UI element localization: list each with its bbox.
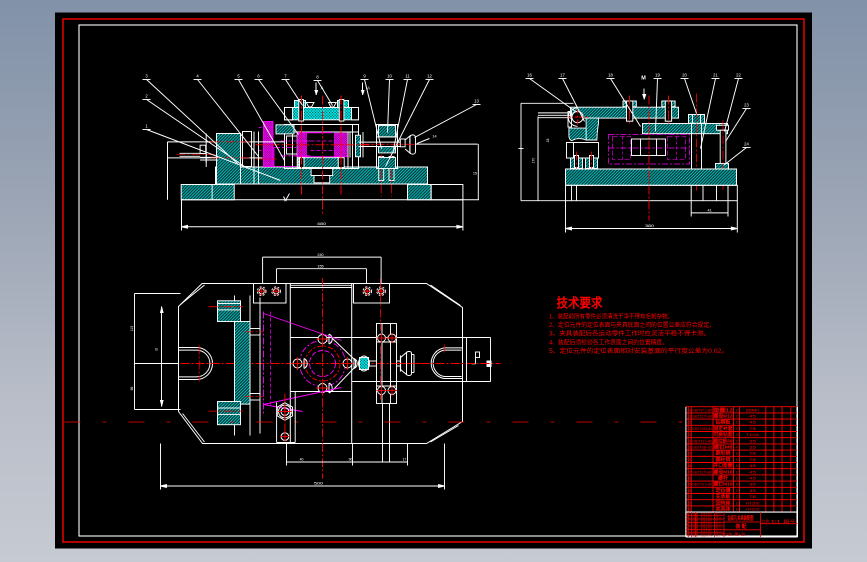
svg-text:更改文件号: 更改文件号 bbox=[701, 515, 713, 519]
svg-text:螺母M12: 螺母M12 bbox=[714, 413, 733, 420]
svg-text:GB/T68-85: GB/T68-85 bbox=[692, 445, 713, 450]
svg-text:1: 1 bbox=[735, 464, 737, 468]
svg-text:1: 1 bbox=[735, 470, 737, 474]
svg-text:定位键: 定位键 bbox=[716, 487, 731, 494]
svg-text:17: 17 bbox=[560, 73, 565, 78]
svg-text:螺杆: 螺杆 bbox=[718, 475, 728, 482]
svg-text:45: 45 bbox=[749, 463, 757, 468]
svg-text:86: 86 bbox=[130, 387, 134, 391]
svg-text:技术要求: 技术要求 bbox=[557, 296, 604, 311]
svg-text:45: 45 bbox=[749, 414, 757, 419]
svg-text:钻底孔夹具装配图: 钻底孔夹具装配图 bbox=[728, 514, 754, 522]
svg-text:签字: 签字 bbox=[716, 526, 722, 530]
svg-text:4、装配后须检验各工作表面之间的位置精度。: 4、装配后须检验各工作表面之间的位置精度。 bbox=[549, 338, 668, 346]
svg-text:480: 480 bbox=[317, 221, 327, 226]
svg-text:2、定位元件的定位表面与夹具底面之间的位置公差应符合规定。: 2、定位元件的定位表面与夹具底面之间的位置公差应符合规定。 bbox=[549, 321, 715, 329]
svg-text:M: M bbox=[641, 76, 646, 82]
svg-text:处数: 处数 bbox=[692, 515, 698, 519]
svg-text:处数: 处数 bbox=[692, 522, 698, 526]
svg-text:1:1: 1:1 bbox=[771, 519, 780, 523]
svg-text:签字: 签字 bbox=[716, 512, 722, 516]
svg-text:5、定位元件的定位表面相对安装基面的平行度公差为0.02。: 5、定位元件的定位表面相对安装基面的平行度公差为0.02。 bbox=[549, 347, 728, 355]
svg-text:标: 标 bbox=[687, 519, 691, 523]
svg-text:1、装配前所有零件必须清洗干净不得有毛刺杂物。: 1、装配前所有零件必须清洗干净不得有毛刺杂物。 bbox=[549, 313, 673, 321]
svg-text:更改文件号: 更改文件号 bbox=[701, 533, 713, 537]
svg-text:17: 17 bbox=[688, 408, 691, 412]
svg-text:1: 1 bbox=[735, 458, 737, 462]
svg-text:16: 16 bbox=[688, 415, 691, 419]
svg-text:垫圈12: 垫圈12 bbox=[714, 406, 733, 413]
svg-text:标: 标 bbox=[687, 529, 691, 533]
svg-text:35: 35 bbox=[749, 445, 757, 450]
svg-text:2: 2 bbox=[735, 489, 737, 493]
svg-text:更改文件号: 更改文件号 bbox=[701, 529, 713, 533]
svg-text:5: 5 bbox=[688, 483, 691, 487]
svg-text:回转座: 回转座 bbox=[716, 499, 731, 506]
svg-text:T8: T8 bbox=[749, 426, 757, 431]
svg-text:开口垫圈: 开口垫圈 bbox=[714, 462, 733, 469]
svg-text:签字: 签字 bbox=[716, 515, 722, 519]
svg-text:2: 2 bbox=[735, 439, 737, 443]
svg-text:HT200: HT200 bbox=[746, 500, 761, 505]
svg-text:处数: 处数 bbox=[692, 529, 698, 533]
svg-text:2: 2 bbox=[735, 495, 737, 499]
svg-text:标: 标 bbox=[687, 533, 691, 537]
svg-text:标: 标 bbox=[687, 526, 691, 530]
svg-text:2: 2 bbox=[735, 427, 737, 431]
svg-text:B: B bbox=[155, 348, 158, 352]
svg-text:处数: 处数 bbox=[692, 533, 698, 537]
svg-text:标: 标 bbox=[687, 522, 691, 526]
svg-text:GB/T6170-86: GB/T6170-86 bbox=[692, 469, 713, 474]
svg-text:15: 15 bbox=[688, 421, 691, 425]
svg-text:45: 45 bbox=[749, 476, 757, 481]
svg-text:1: 1 bbox=[688, 508, 691, 512]
svg-text:18: 18 bbox=[608, 73, 613, 78]
svg-text:240: 240 bbox=[317, 253, 323, 257]
svg-text:10: 10 bbox=[688, 452, 691, 456]
svg-text:螺钉M8: 螺钉M8 bbox=[714, 444, 733, 451]
svg-text:更改文件号: 更改文件号 bbox=[701, 512, 713, 516]
svg-text:11: 11 bbox=[688, 446, 691, 450]
svg-text:12: 12 bbox=[427, 74, 432, 79]
svg-text:2: 2 bbox=[688, 501, 691, 505]
svg-text:2: 2 bbox=[735, 408, 737, 412]
svg-text:比例: 比例 bbox=[762, 518, 769, 523]
svg-text:圆柱销A8: 圆柱销A8 bbox=[714, 437, 733, 444]
svg-text:4: 4 bbox=[735, 483, 737, 487]
svg-text:4: 4 bbox=[688, 489, 691, 493]
svg-text:图号: 图号 bbox=[784, 518, 796, 523]
svg-text:17: 17 bbox=[403, 457, 407, 461]
svg-text:14: 14 bbox=[432, 135, 436, 139]
svg-text:T8: T8 bbox=[749, 494, 757, 499]
svg-text:螺母M16: 螺母M16 bbox=[714, 468, 733, 475]
svg-text:1: 1 bbox=[735, 477, 737, 481]
svg-text:35: 35 bbox=[749, 482, 757, 487]
svg-text:2: 2 bbox=[735, 415, 737, 419]
svg-text:螺钉M10: 螺钉M10 bbox=[714, 481, 733, 488]
svg-text:1: 1 bbox=[735, 508, 737, 512]
svg-text:处数: 处数 bbox=[692, 512, 698, 516]
svg-text:6: 6 bbox=[688, 477, 691, 481]
svg-text:装 配: 装 配 bbox=[736, 522, 748, 530]
svg-text:115: 115 bbox=[130, 326, 134, 332]
svg-text:标: 标 bbox=[687, 512, 691, 516]
svg-text:T8: T8 bbox=[749, 457, 757, 462]
svg-text:24: 24 bbox=[744, 142, 749, 147]
svg-text:155: 155 bbox=[317, 265, 323, 269]
svg-text:标: 标 bbox=[687, 515, 691, 519]
svg-text:13: 13 bbox=[688, 433, 691, 437]
svg-text:更改文件号: 更改文件号 bbox=[701, 519, 713, 523]
svg-text:45: 45 bbox=[749, 420, 757, 425]
svg-text:8: 8 bbox=[688, 464, 691, 468]
svg-text:A: A bbox=[367, 86, 370, 91]
svg-text:处数: 处数 bbox=[692, 526, 698, 530]
svg-text:45: 45 bbox=[749, 469, 757, 474]
svg-text:35: 35 bbox=[749, 438, 757, 443]
svg-text:菱形销: 菱形销 bbox=[716, 450, 731, 457]
svg-text:处数: 处数 bbox=[692, 519, 698, 523]
svg-text:更改文件号: 更改文件号 bbox=[701, 522, 713, 526]
svg-text:11: 11 bbox=[405, 74, 410, 79]
svg-text:固定衬套: 固定衬套 bbox=[714, 425, 733, 432]
svg-text:圆柱销: 圆柱销 bbox=[716, 456, 731, 463]
svg-text:共1张 第1张: 共1张 第1张 bbox=[722, 531, 747, 536]
svg-text:GB/T2263-80: GB/T2263-80 bbox=[692, 426, 713, 431]
svg-text:钻模板: 钻模板 bbox=[716, 419, 731, 426]
svg-text:GB/T6170-86: GB/T6170-86 bbox=[692, 414, 713, 419]
svg-text:18: 18 bbox=[546, 139, 550, 143]
svg-text:15: 15 bbox=[473, 172, 477, 176]
svg-text:1: 1 bbox=[735, 421, 737, 425]
svg-text:23: 23 bbox=[744, 103, 749, 108]
svg-text:GB/T97.1-85: GB/T97.1-85 bbox=[692, 407, 713, 412]
svg-text:支承板: 支承板 bbox=[716, 493, 731, 500]
svg-text:3、夹具装配后各运动零件工作时应灵活平稳不得卡滞。: 3、夹具装配后各运动零件工作时应灵活平稳不得卡滞。 bbox=[549, 330, 710, 338]
svg-text:HT200: HT200 bbox=[746, 507, 761, 512]
svg-text:19: 19 bbox=[655, 73, 660, 78]
svg-text:2: 2 bbox=[735, 433, 737, 437]
svg-text:500: 500 bbox=[314, 481, 324, 486]
svg-text:16: 16 bbox=[527, 73, 532, 78]
svg-text:170: 170 bbox=[532, 158, 536, 164]
svg-text:20: 20 bbox=[682, 73, 687, 78]
svg-text:380: 380 bbox=[645, 223, 655, 228]
svg-text:90: 90 bbox=[349, 457, 353, 461]
svg-text:签字: 签字 bbox=[716, 522, 722, 526]
svg-text:7: 7 bbox=[688, 470, 691, 474]
svg-text:1: 1 bbox=[735, 452, 737, 456]
svg-text:GB/T119-86: GB/T119-86 bbox=[692, 438, 713, 443]
svg-text:GB/T70.1-85: GB/T70.1-85 bbox=[692, 482, 713, 487]
svg-text:更改文件号: 更改文件号 bbox=[701, 526, 713, 530]
svg-text:45: 45 bbox=[749, 488, 757, 493]
svg-text:9: 9 bbox=[688, 458, 691, 462]
svg-text:40: 40 bbox=[300, 457, 304, 461]
svg-text:夹具体: 夹具体 bbox=[716, 506, 731, 513]
svg-text:41: 41 bbox=[708, 208, 712, 212]
svg-text:65Mn: 65Mn bbox=[746, 407, 760, 412]
svg-text:21: 21 bbox=[713, 73, 718, 78]
svg-text:T8: T8 bbox=[749, 451, 757, 456]
svg-text:1: 1 bbox=[735, 501, 737, 505]
svg-text:22: 22 bbox=[736, 73, 741, 78]
svg-text:14: 14 bbox=[688, 427, 691, 431]
svg-text:12: 12 bbox=[688, 439, 691, 443]
svg-text:13: 13 bbox=[474, 99, 479, 104]
svg-text:签字: 签字 bbox=[716, 519, 722, 523]
svg-text:3: 3 bbox=[688, 495, 691, 499]
svg-text:10: 10 bbox=[387, 74, 392, 79]
svg-text:T10A: T10A bbox=[746, 432, 760, 437]
svg-text:可换钻套: 可换钻套 bbox=[714, 431, 733, 438]
svg-text:4: 4 bbox=[735, 446, 737, 450]
